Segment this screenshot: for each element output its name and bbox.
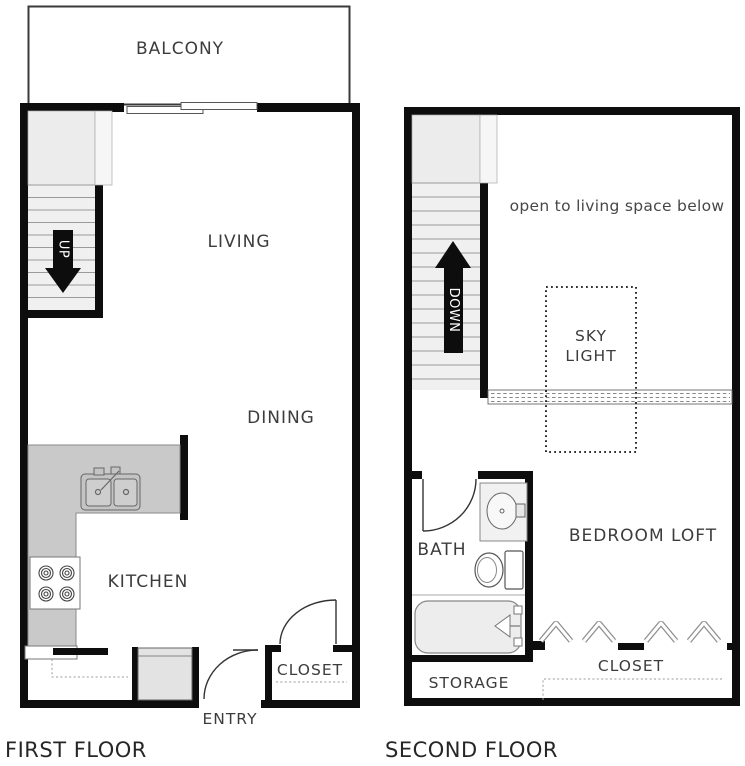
entry-label: ENTRY [202,710,257,728]
bathroom: BATH [412,479,527,653]
dining-label: DINING [247,408,315,428]
loft-closet: CLOSET [541,623,722,700]
balcony-label: BALCONY [136,39,224,59]
skylight-label-line1: SKY [575,327,607,345]
loft-closet-shelf-dashed [543,679,722,700]
up-arrow-label: UP [56,240,71,258]
closet-door [280,600,336,644]
loft-closet-label: CLOSET [598,657,664,675]
open-to-below-note: open to living space below [510,197,725,215]
first-floor-plan: BALCONY [5,7,360,763]
floorplan-canvas: BALCONY [0,0,745,766]
bath-label: BATH [417,540,466,560]
stove [30,557,80,609]
toilet [475,551,523,589]
balcony: BALCONY [29,7,350,105]
down-arrow-label: DOWN [446,288,461,333]
bedroom-loft-label: BEDROOM LOFT [569,526,717,546]
counter-stub-wall [53,648,108,655]
closet-bifold-doors [541,623,719,641]
skylight-label-line2: LIGHT [565,347,616,365]
bathtub [415,601,522,653]
kitchen-area: KITCHEN [25,445,192,700]
second-floor-title: SECOND FLOOR [385,738,558,762]
loft-railing [488,390,732,404]
second-floor-plan: DOWN SKY LIGHT open to living space belo… [385,107,740,762]
first-floor-title: FIRST FLOOR [5,738,147,762]
closet-label: CLOSET [277,661,343,679]
first-floor-closet: CLOSET [276,600,347,682]
living-label: LIVING [207,232,270,252]
skylight: SKY LIGHT [546,287,636,452]
vanity-sink [480,483,527,541]
utility-closet [138,648,192,700]
entry-door [204,650,258,699]
bath-door [423,479,476,531]
kitchen-label: KITCHEN [108,572,189,592]
storage-label: STORAGE [429,674,510,692]
counter-dashed-line [52,659,128,677]
